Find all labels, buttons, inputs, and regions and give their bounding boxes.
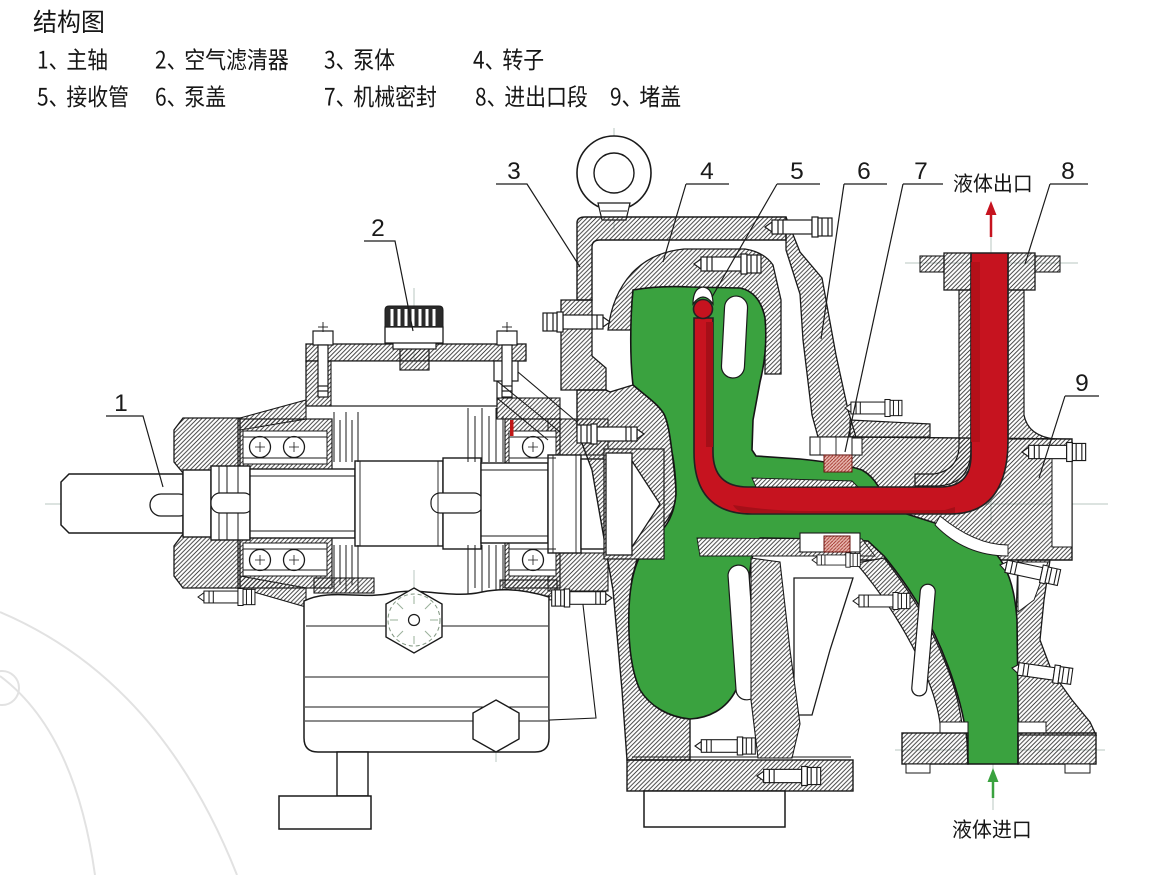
svg-text:8: 8 [1061, 158, 1075, 185]
svg-text:1: 1 [114, 390, 128, 417]
svg-text:6: 6 [857, 158, 871, 185]
svg-text:9: 9 [1075, 370, 1089, 397]
svg-text:3: 3 [507, 158, 521, 185]
svg-text:7: 7 [914, 158, 928, 185]
svg-text:4: 4 [700, 158, 714, 185]
svg-text:2: 2 [371, 215, 385, 242]
svg-text:5: 5 [790, 158, 804, 185]
